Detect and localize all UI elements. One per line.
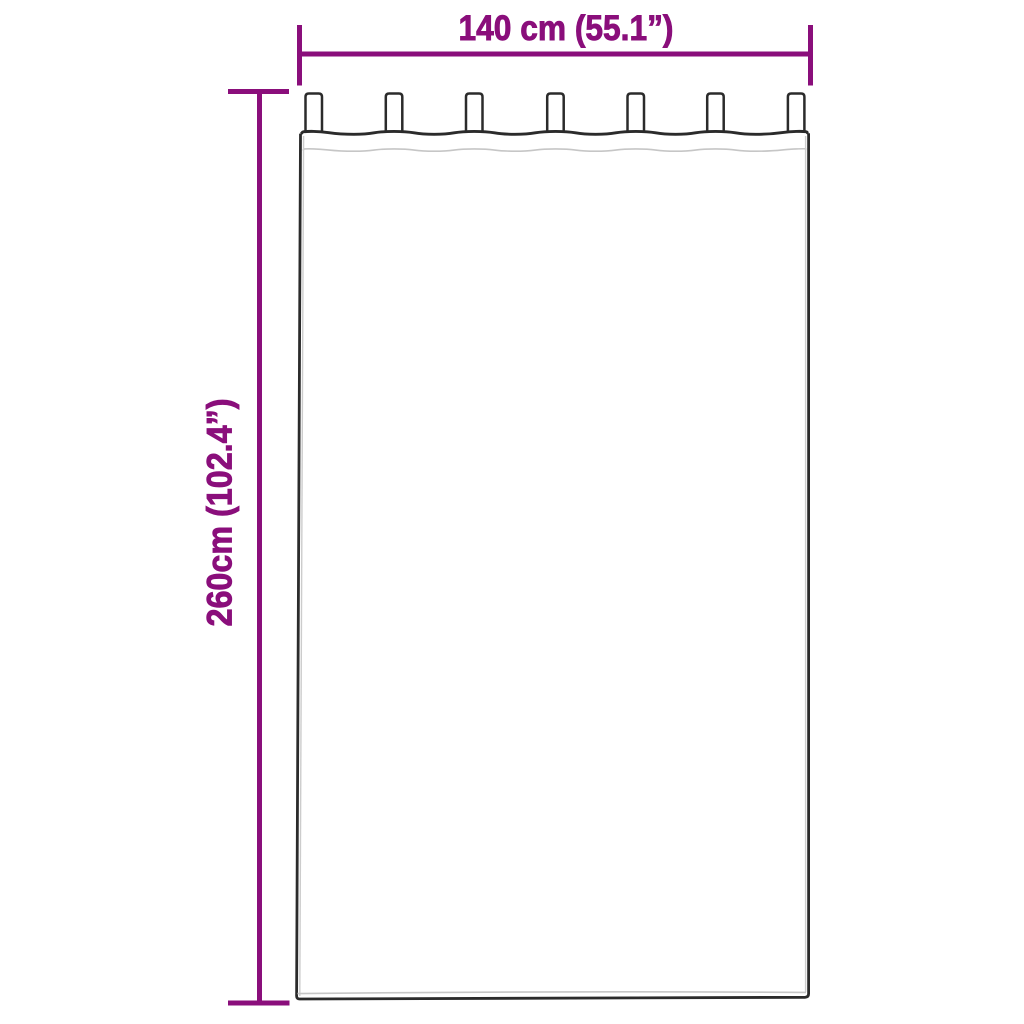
svg-text:140 cm (55.1”): 140 cm (55.1”) (459, 9, 674, 48)
svg-text:260cm (102.4”): 260cm (102.4”) (201, 399, 240, 627)
